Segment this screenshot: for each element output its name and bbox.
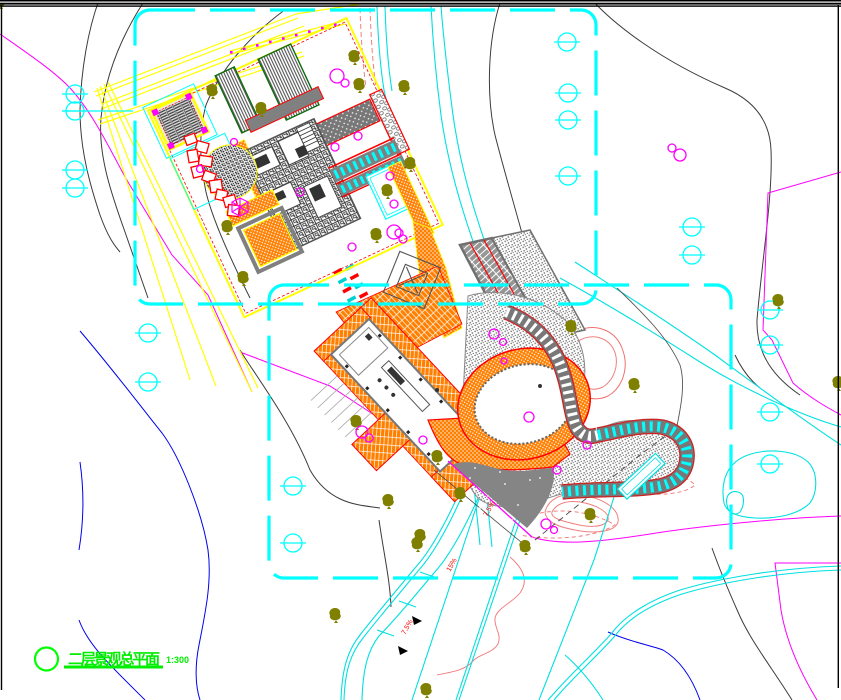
svg-text:1:300: 1:300 [166,655,189,665]
svg-text:二层景观总平面: 二层景观总平面 [68,650,160,668]
